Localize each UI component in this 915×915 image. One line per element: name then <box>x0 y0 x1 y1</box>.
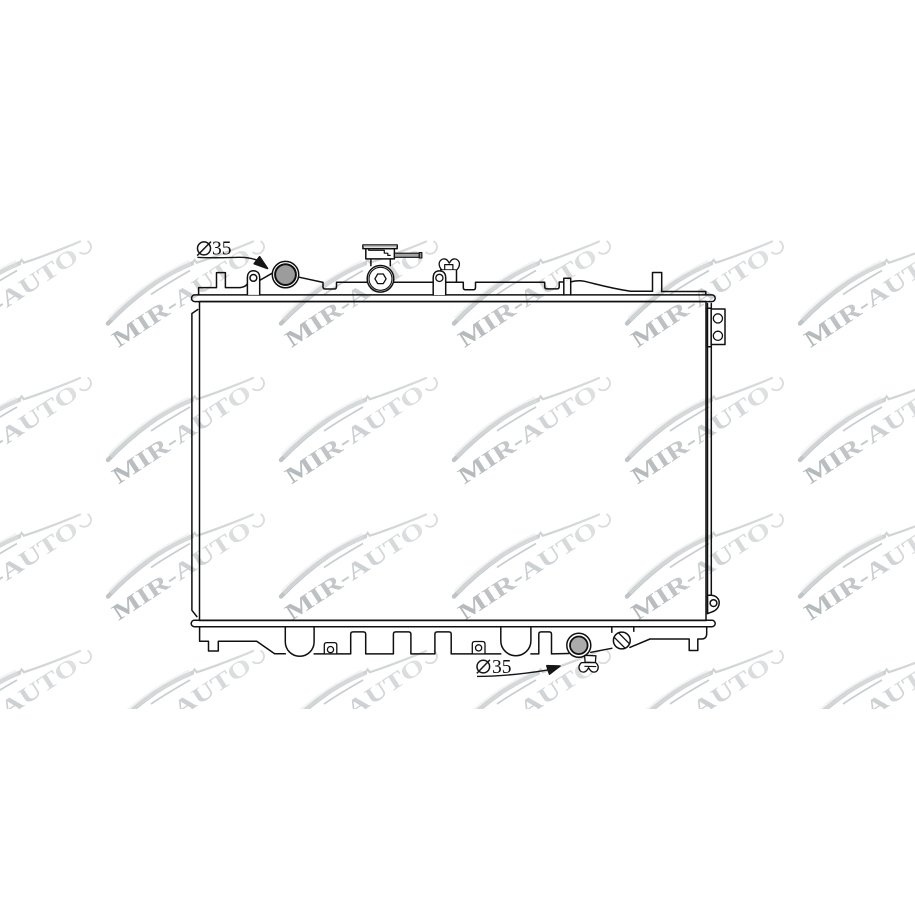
svg-text:35: 35 <box>212 239 232 260</box>
